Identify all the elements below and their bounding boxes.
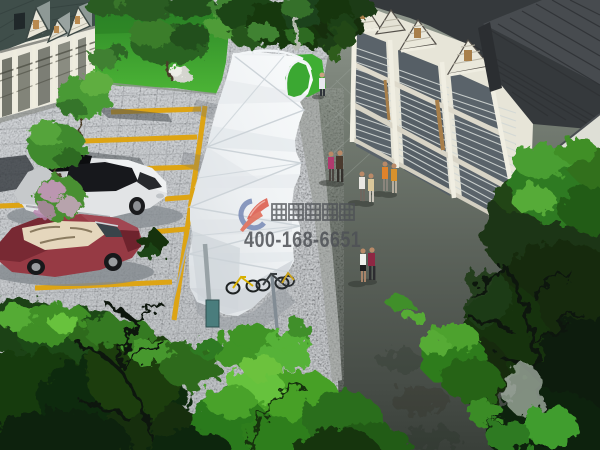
svg-text:400-168-6651: 400-168-6651 [244, 228, 361, 252]
